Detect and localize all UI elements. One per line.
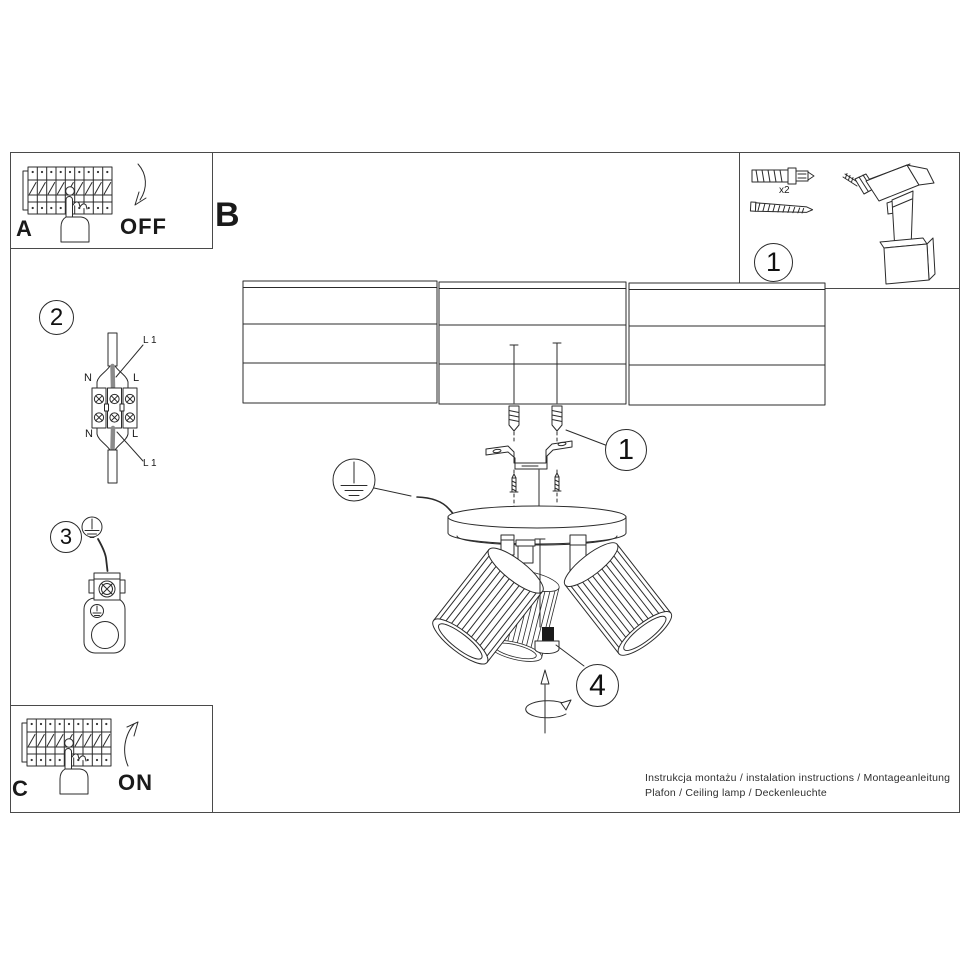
footer-title-line: Instrukcja montażu / instalation instruc… [645,773,950,784]
ceiling-lamp-assembly [417,497,677,733]
arrow-up-icon [125,722,138,766]
wire-label-l-top: L [133,373,139,384]
diagram-canvas [0,0,970,970]
callout-bracket-part-1: 1 [605,429,647,471]
mounting-screw-icon [553,473,561,491]
terminal-block-diagram [92,333,143,483]
drill-icon [843,164,935,284]
section-a-label: A [16,218,33,240]
wire-label-l1-bottom: L 1 [143,459,157,469]
section-b-label: B [215,198,240,232]
mounting-screw-icon [510,474,518,492]
wall-plug-icon [552,406,562,431]
callout-step-4: 4 [576,664,619,707]
instruction-sheet: A OFF B C ON x2 L 1 N L N L L 1 Instrukc… [0,0,970,970]
power-on-label: ON [118,772,153,794]
rotate-arrow-icon [526,670,571,733]
screw-icon [750,202,812,214]
mounting-bracket-icon [486,441,572,469]
plug-quantity-label: x2 [779,186,790,196]
power-off-label: OFF [120,216,167,238]
wall-plug-icon [509,406,519,431]
wire-label-l-bottom: L [132,429,138,440]
callout-step-3: 3 [50,521,82,553]
wire-label-l1-top: L 1 [143,336,157,346]
wire-label-n-top: N [84,373,92,384]
wall-plug-horizontal-icon [752,168,814,184]
ground-wire-diagram [82,517,125,653]
section-c-label: C [12,778,29,800]
callout-tools-1: 1 [754,243,793,282]
arrow-down-icon [135,164,146,205]
ceiling-panels [243,281,825,405]
wire-label-n-bottom: N [85,429,93,440]
ground-lead-wire [417,497,455,517]
earth-symbol-icon [333,459,411,501]
leader-line [556,645,584,666]
footer-product-line: Plafon / Ceiling lamp / Deckenleuchte [645,788,827,799]
callout-step-2: 2 [39,300,74,335]
